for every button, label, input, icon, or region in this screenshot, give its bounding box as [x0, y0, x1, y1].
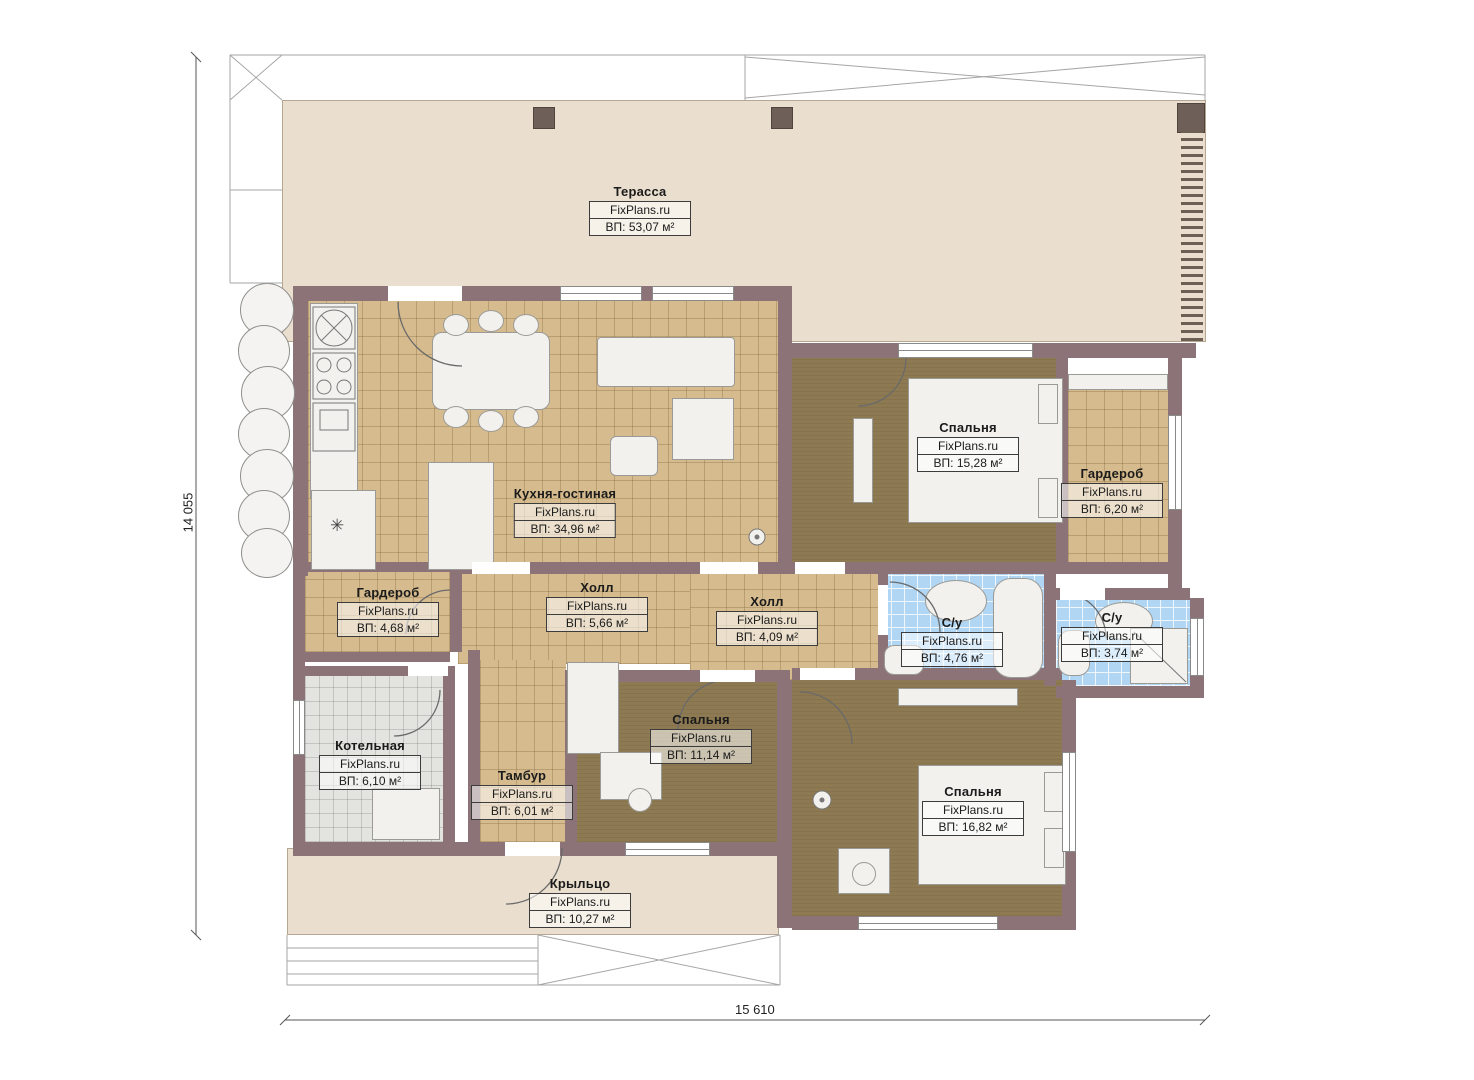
room-area: ВП: 10,27 м²: [529, 910, 631, 928]
door-gap: [472, 562, 530, 574]
room-area: ВП: 6,10 м²: [319, 772, 421, 790]
terrace-column: [771, 107, 793, 129]
watermark: FixPlans.ru: [716, 611, 818, 629]
room-name: Тамбур: [498, 768, 546, 783]
room-label-hall1: Холл FixPlans.ru ВП: 5,66 м²: [546, 580, 648, 632]
room-label-porch: Крыльцо FixPlans.ru ВП: 10,27 м²: [529, 876, 631, 928]
room-name: Холл: [580, 580, 613, 595]
watermark: FixPlans.ru: [529, 893, 631, 911]
room-name: Терасса: [614, 184, 667, 199]
terrace-edge-ladder: [1181, 130, 1203, 342]
room-area: ВП: 6,01 м²: [471, 802, 573, 820]
watermark: FixPlans.ru: [917, 437, 1019, 455]
watermark: FixPlans.ru: [319, 755, 421, 773]
door-gap: [700, 562, 758, 574]
room-area: ВП: 4,09 м²: [716, 628, 818, 646]
room-name: Крыльцо: [550, 876, 611, 891]
room-area: ВП: 4,76 м²: [901, 649, 1003, 667]
watermark: FixPlans.ru: [922, 801, 1024, 819]
room-name: Спальня: [672, 712, 730, 727]
window: [1062, 752, 1076, 852]
roof-and-dimension-lines: [0, 0, 1474, 1080]
room-area: ВП: 16,82 м²: [922, 818, 1024, 836]
window: [858, 916, 998, 930]
room-label-kitchen: Кухня-гостиная FixPlans.ru ВП: 34,96 м²: [514, 486, 616, 538]
door-gap: [1060, 588, 1105, 600]
room-area: ВП: 3,74 м²: [1061, 644, 1163, 662]
dimension-label-left: 14 055: [180, 493, 195, 533]
room-name: С/у: [942, 615, 963, 630]
watermark: FixPlans.ru: [514, 503, 616, 521]
watermark: FixPlans.ru: [901, 632, 1003, 650]
door-gap: [795, 562, 845, 574]
room-name: Спальня: [939, 420, 997, 435]
room-area: ВП: 53,07 м²: [589, 218, 691, 236]
room-label-boiler: Котельная FixPlans.ru ВП: 6,10 м²: [319, 738, 421, 790]
drain-icon: ✳: [330, 516, 344, 536]
door-gap: [408, 666, 448, 676]
room-area: ВП: 5,66 м²: [546, 614, 648, 632]
room-label-vestibule: Тамбур FixPlans.ru ВП: 6,01 м²: [471, 768, 573, 820]
window: [293, 700, 305, 755]
room-name: С/у: [1102, 610, 1123, 625]
terrace-column: [533, 107, 555, 129]
room-label-terrace: Терасса FixPlans.ru ВП: 53,07 м²: [589, 184, 691, 236]
room-name: Гардероб: [356, 585, 419, 600]
room-area: ВП: 15,28 м²: [917, 454, 1019, 472]
watermark: FixPlans.ru: [1061, 483, 1163, 501]
window: [625, 842, 710, 856]
watermark: FixPlans.ru: [589, 201, 691, 219]
door-gap: [388, 286, 462, 301]
door-gap: [505, 842, 560, 856]
window: [898, 343, 1033, 358]
room-name: Гардероб: [1080, 466, 1143, 481]
watermark: FixPlans.ru: [1061, 627, 1163, 645]
room-name: Котельная: [335, 738, 405, 753]
room-area: ВП: 34,96 м²: [514, 520, 616, 538]
room-label-hall2: Холл FixPlans.ru ВП: 4,09 м²: [716, 594, 818, 646]
window: [560, 286, 642, 301]
room-label-bath1: С/у FixPlans.ru ВП: 4,76 м²: [901, 615, 1003, 667]
room-label-bath2: С/у FixPlans.ru ВП: 3,74 м²: [1061, 610, 1163, 662]
terrace-column: [1177, 103, 1205, 133]
window: [1168, 415, 1182, 510]
watermark: FixPlans.ru: [546, 597, 648, 615]
room-area: ВП: 6,20 м²: [1061, 500, 1163, 518]
watermark: FixPlans.ru: [337, 602, 439, 620]
room-area: ВП: 11,14 м²: [650, 746, 752, 764]
window: [652, 286, 734, 301]
window: [1190, 618, 1204, 676]
room-area: ВП: 4,68 м²: [337, 619, 439, 637]
room-name: Кухня-гостиная: [514, 486, 616, 501]
watermark: FixPlans.ru: [650, 729, 752, 747]
watermark: FixPlans.ru: [471, 785, 573, 803]
room-label-bedroom3: Спальня FixPlans.ru ВП: 16,82 м²: [922, 784, 1024, 836]
dimension-label-bottom: 15 610: [735, 1002, 775, 1017]
room-label-bedroom1: Спальня FixPlans.ru ВП: 15,28 м²: [917, 420, 1019, 472]
room-label-wardrobe2: Гардероб FixPlans.ru ВП: 4,68 м²: [337, 585, 439, 637]
room-name: Холл: [750, 594, 783, 609]
floor-plan: 14 055 15 610: [0, 0, 1474, 1080]
room-label-bedroom2: Спальня FixPlans.ru ВП: 11,14 м²: [650, 712, 752, 764]
door-gap: [700, 670, 755, 682]
room-label-wardrobe1: Гардероб FixPlans.ru ВП: 6,20 м²: [1061, 466, 1163, 518]
door-gap: [800, 668, 855, 680]
door-gap: [878, 585, 888, 635]
room-name: Спальня: [944, 784, 1002, 799]
